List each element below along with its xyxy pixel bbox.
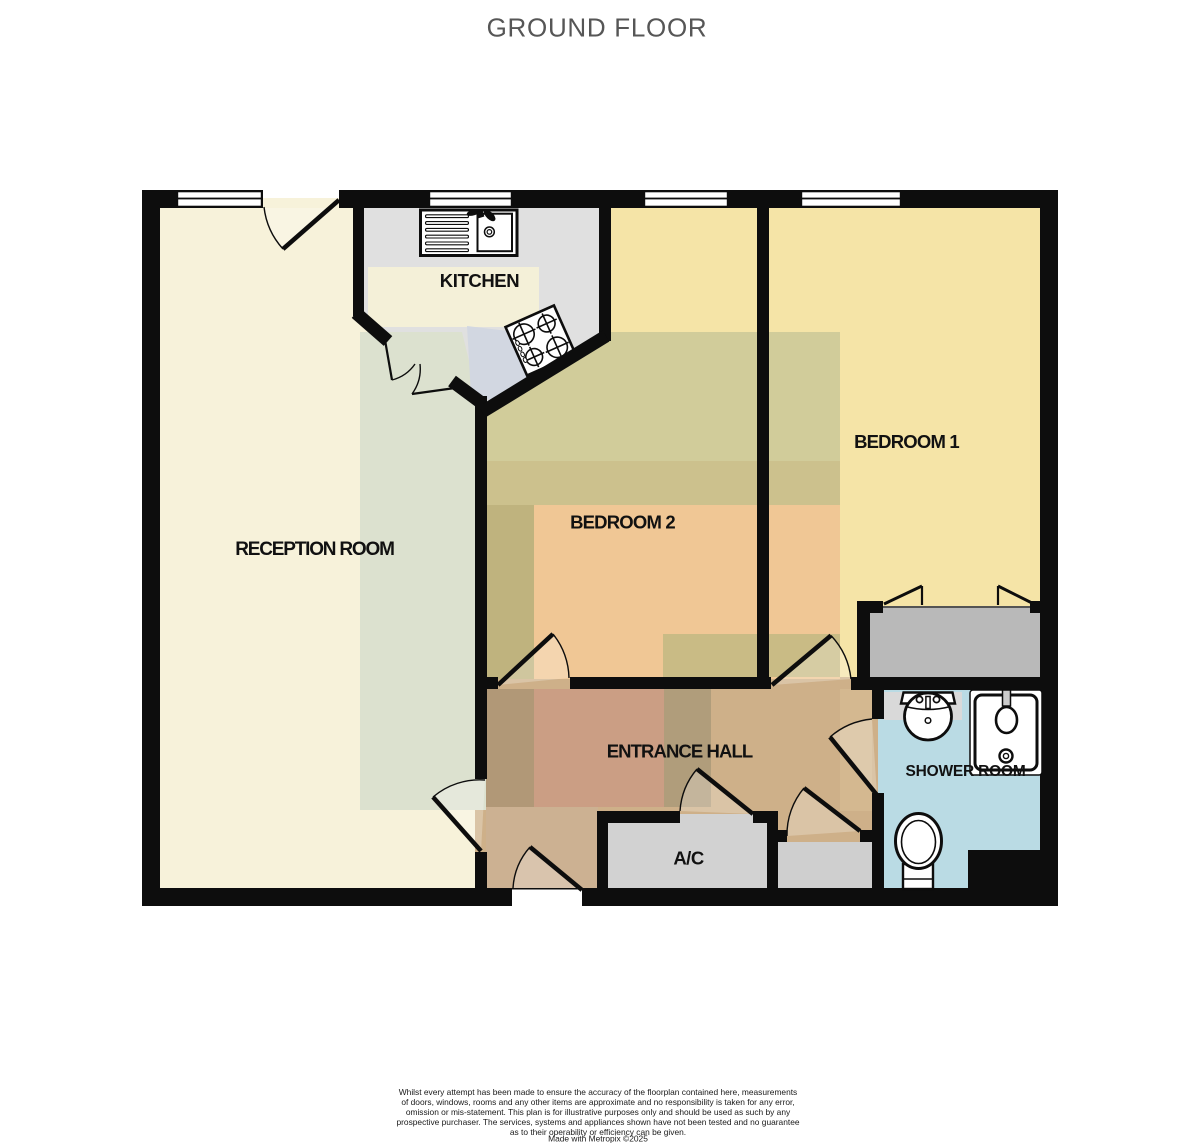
svg-text:GROUND FLOOR: GROUND FLOOR [487,13,708,43]
svg-text:prospective purchaser. The ser: prospective purchaser. The services, sys… [396,1117,799,1127]
svg-text:BEDROOM 2: BEDROOM 2 [570,512,675,533]
svg-text:Made with Metropix ©2025: Made with Metropix ©2025 [548,1134,648,1144]
svg-text:of doors, windows, rooms and a: of doors, windows, rooms and any other i… [401,1097,794,1107]
svg-text:RECEPTION ROOM: RECEPTION ROOM [235,539,394,560]
svg-text:SHOWER ROOM: SHOWER ROOM [905,763,1025,780]
svg-text:Whilst every attempt has been: Whilst every attempt has been made to en… [399,1087,798,1097]
svg-text:A/C: A/C [673,847,704,868]
svg-text:omission or mis-statement. Thi: omission or mis-statement. This plan is … [406,1107,791,1117]
svg-text:BEDROOM 1: BEDROOM 1 [854,431,959,452]
svg-text:ENTRANCE HALL: ENTRANCE HALL [607,741,753,762]
svg-text:KITCHEN: KITCHEN [440,270,519,291]
